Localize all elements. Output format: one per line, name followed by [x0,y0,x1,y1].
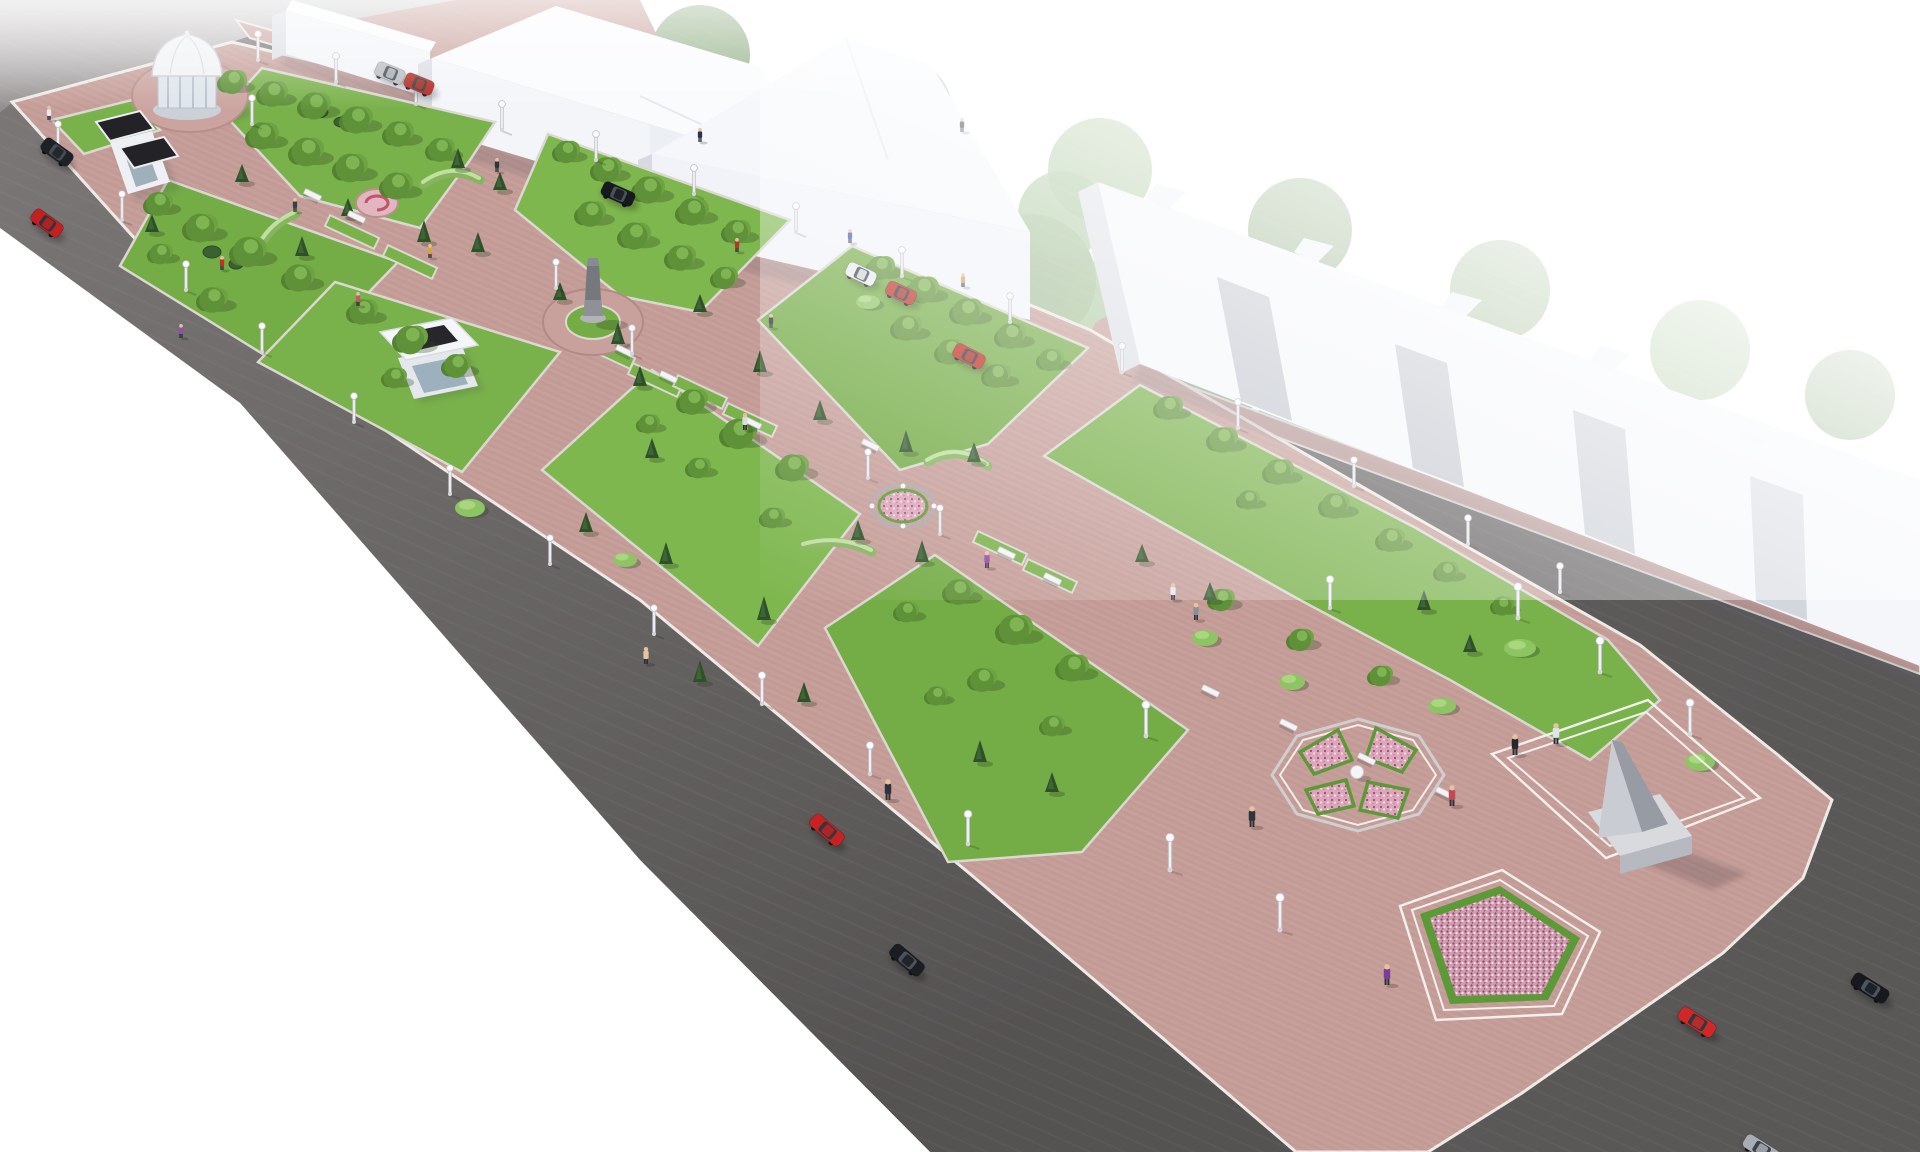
lamp-base [260,350,264,354]
lamp-base [500,128,504,132]
lamp-globe [964,810,972,818]
lamp-globe [1166,833,1175,842]
person-head [698,128,702,132]
person-legs [356,302,357,307]
lamp-base [548,562,552,566]
tree-canopy-highlight [453,356,464,367]
person-head [495,158,499,162]
person-legs [179,334,180,339]
tree-canopy-highlight [979,670,990,681]
tree-canopy-highlight [294,266,307,279]
person-head [356,292,360,296]
person-legs [1452,799,1454,806]
tree-canopy-highlight [157,245,167,255]
person-body [356,295,360,302]
tree-canopy-highlight [258,124,271,137]
person-legs [1385,978,1387,985]
lamp-base [966,842,971,847]
tree-canopy-highlight [1068,656,1081,669]
person-legs [888,793,890,800]
lamp-globe [1686,699,1694,707]
lamp-base [760,702,764,706]
lamp-base [594,158,598,162]
lamp-base [184,288,188,292]
person-head [220,256,224,260]
tree-canopy-highlight [630,224,643,237]
person-legs [1515,748,1517,755]
lamp-globe [351,393,358,400]
person-body [220,259,224,266]
person-legs [47,116,48,121]
person-head [885,779,890,784]
person-head [743,413,747,417]
person-head [293,198,297,202]
person-legs [1450,799,1452,806]
statue-column [585,264,601,300]
mound-bush-highlight [1508,641,1526,650]
person-legs [737,248,738,253]
person-legs [49,116,50,121]
lamp-base [652,632,656,636]
person-head [1384,964,1389,969]
lamp-globe [866,742,873,749]
person-body [698,131,702,138]
person-legs [646,659,648,665]
person-legs [295,208,296,213]
person-legs [293,208,294,213]
person-body [47,109,51,116]
tree-canopy-highlight [1049,717,1059,727]
person-head [428,244,432,248]
person-body [1193,607,1198,615]
lamp-globe [259,323,266,330]
topiary-bush [203,246,221,258]
person-legs [735,248,736,253]
person-head [644,647,648,651]
lamp-globe [758,672,765,679]
person-legs [698,138,699,143]
person-head [1449,785,1454,790]
person-head [179,324,183,328]
lamp-base [554,286,558,290]
octagon-bed-lr [1360,782,1408,818]
lamp-base [120,218,124,222]
tree-canopy-highlight [1010,617,1024,631]
tree-canopy-highlight [394,123,406,135]
tree-canopy-highlight [391,369,401,379]
person-legs [1387,978,1389,985]
tree-canopy-highlight [406,328,420,342]
tree-canopy-highlight [1377,667,1387,677]
lamp-base [692,192,696,196]
tree-canopy-highlight [244,239,258,253]
lamp-base [1144,734,1149,739]
lamp-globe [1276,893,1285,902]
lamp-base [250,122,254,126]
tree-canopy-highlight [392,174,405,187]
tree-canopy-highlight [1297,630,1308,641]
mound-bush-highlight [615,554,628,561]
person-legs [1252,820,1254,827]
tree-canopy-highlight [688,391,700,403]
person-body [885,784,891,794]
person-legs [644,659,646,665]
mound-bush-highlight [1195,631,1209,639]
tree-canopy-highlight [733,222,744,233]
person-body [735,241,739,248]
lamp-base [1688,732,1693,737]
tree-canopy-highlight [196,216,210,230]
lamp-base [1516,616,1521,621]
mound-bush-highlight [1431,699,1446,707]
person-head [735,238,739,242]
lamp-globe [651,605,658,612]
person-legs [495,168,496,173]
person-body [293,201,297,208]
person-legs [1196,615,1198,621]
person-head [1194,603,1198,607]
lamp-globe [629,325,636,332]
person-legs [743,425,745,431]
tree-canopy-highlight [645,416,654,425]
person-legs [430,254,431,259]
tree-canopy-highlight [676,247,688,259]
person-legs [1556,737,1558,744]
person-head [1249,806,1254,811]
person-body [1249,811,1255,821]
person-body [495,161,499,168]
tree-canopy-highlight [903,603,913,613]
mound-bush-highlight [459,501,476,510]
boulevard-square-render [0,0,1920,1152]
lamp-globe [1596,637,1604,645]
person-body [428,247,432,254]
person-legs [497,168,498,173]
person-head [1512,734,1517,739]
person-legs [700,138,701,143]
person-legs [428,254,429,259]
person-legs [181,334,182,339]
lamp-base [1328,606,1332,610]
person-body [1384,969,1390,979]
tree-canopy-highlight [695,459,705,469]
lamp-base [868,772,872,776]
person-legs [1194,615,1196,621]
lamp-globe [447,465,454,472]
person-legs [358,302,359,307]
person-body [643,651,648,659]
lamp-globe [119,191,126,198]
person-legs [220,266,221,271]
tree-canopy-highlight [437,140,448,151]
octagon-ball [1351,766,1364,779]
lamp-globe [547,535,554,542]
lamp-globe [1142,701,1150,709]
mound-bush-highlight [1282,675,1296,683]
statue-plinth [583,298,603,316]
person-body [1449,790,1455,800]
tree-canopy-highlight [208,289,220,301]
tree-canopy-highlight [302,140,316,154]
tree-canopy-highlight [155,194,166,205]
person-body [1553,728,1559,738]
lamp-globe [553,259,560,266]
tree-canopy-highlight [721,268,732,279]
lamp-globe [593,131,600,138]
person-body [1512,739,1518,749]
person-legs [222,266,223,271]
person-body [742,417,747,425]
person-body [179,327,183,334]
tree-canopy-highlight [933,688,942,697]
tree-canopy-highlight [688,200,701,213]
lamp-globe [183,261,190,268]
person-legs [1554,737,1556,744]
lamp-base [352,420,356,424]
person-head [1553,723,1558,728]
tree-canopy-highlight [586,203,598,215]
lamp-base [1168,868,1173,873]
person-legs [745,425,747,431]
person-legs [886,793,888,800]
lamp-base [448,492,452,496]
lamp-base [630,352,634,356]
lamp-base [1278,928,1283,933]
lamp-globe [691,165,698,172]
fog-top [0,0,1920,110]
statue-cap [587,258,599,266]
person-legs [1513,748,1515,755]
tree-canopy-highlight [352,108,365,121]
architectural-render-canvas [0,0,1920,1152]
lamp-base [1598,670,1603,675]
tree-canopy-highlight [346,156,360,170]
tree-canopy-highlight [563,142,574,153]
person-legs [1250,820,1252,827]
tree-canopy-highlight [644,178,657,191]
